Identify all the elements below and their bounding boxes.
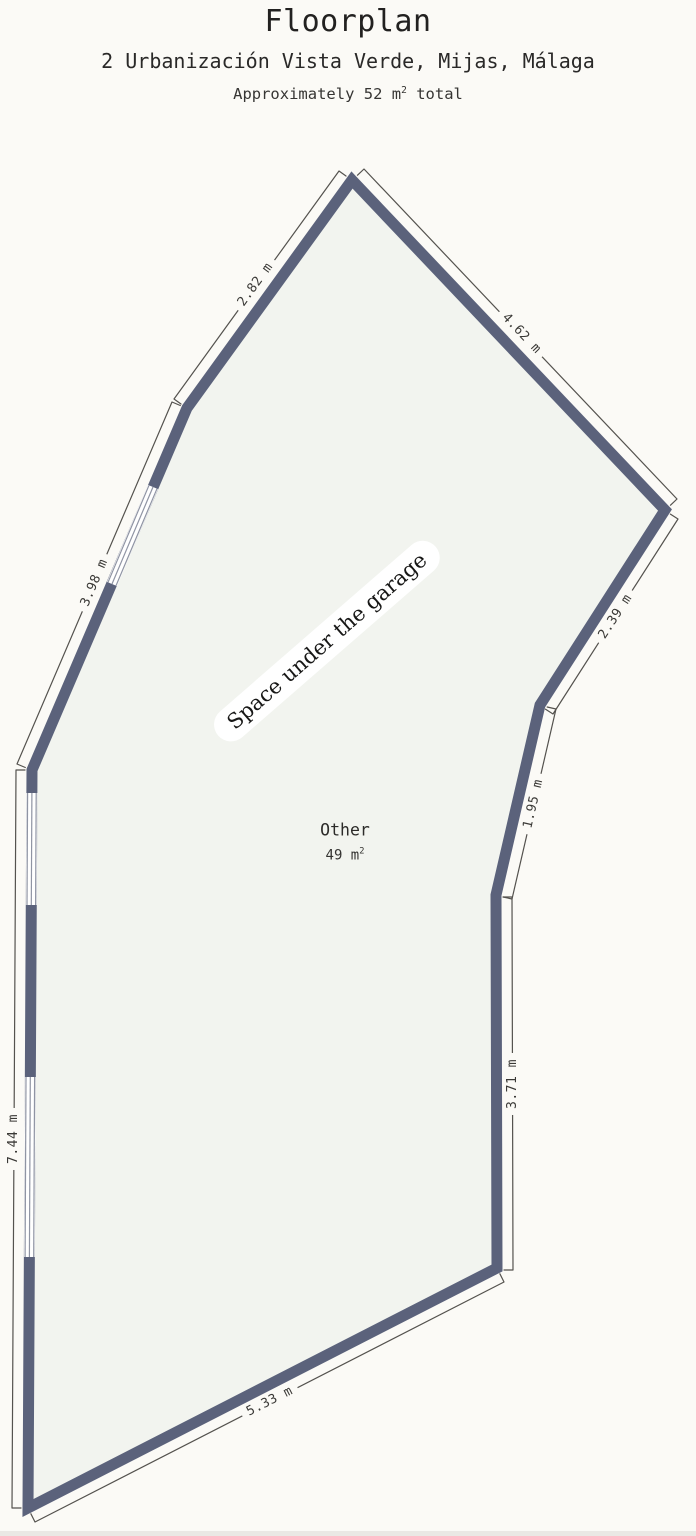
floorplan-drawing [0, 0, 696, 1536]
room-outline [28, 180, 665, 1508]
dimension-label-right-lower: 3.71 m [505, 1053, 521, 1115]
room-area-value: 49 m [326, 847, 360, 863]
window-left-wall-upper [27, 793, 36, 905]
room-name-label: Other [320, 821, 370, 840]
window-left-wall-lower [25, 1077, 34, 1257]
room-area-superscript: 2 [359, 847, 364, 857]
dimension-label-left: 7.44 m [6, 1108, 22, 1170]
bottom-edge-divider [0, 1531, 696, 1536]
room-area-label: 49 m2 [326, 847, 365, 864]
floorplan-page: Floorplan 2 Urbanización Vista Verde, Mi… [0, 0, 696, 1536]
